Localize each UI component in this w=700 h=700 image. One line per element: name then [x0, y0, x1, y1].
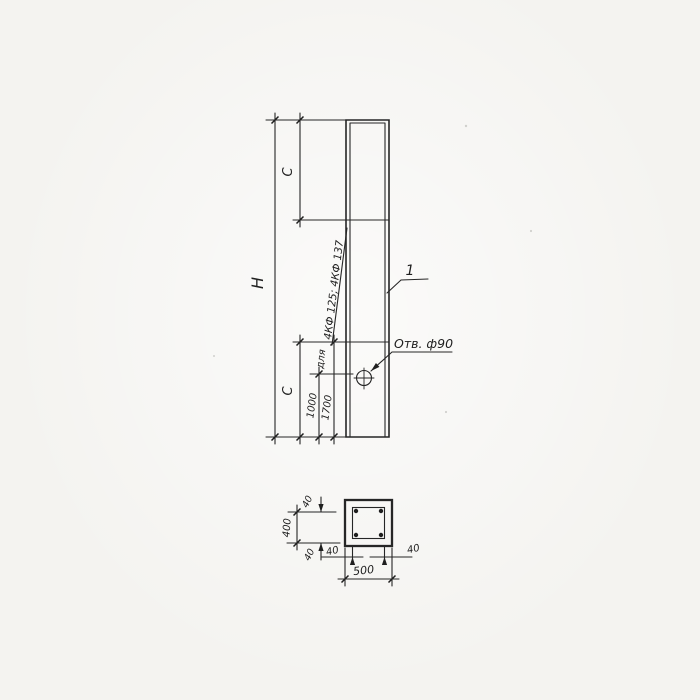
section-cover-left-arrow [350, 557, 355, 565]
elevation-view: H C C 1000 1700 для 4КФ 125; 4КФ 137 Отв… [248, 113, 453, 444]
dim-label-1000: 1000 [305, 392, 319, 419]
section-rebar-dots [354, 509, 383, 537]
part-number-text: 1 [406, 263, 415, 279]
scanned-drawing-page: H C C 1000 1700 для 4КФ 125; 4КФ 137 Отв… [0, 0, 700, 700]
section-cover-bottom-arrow [318, 543, 323, 551]
dim-label-500: 500 [353, 563, 375, 578]
hole-callout-text: Отв. ф90 [394, 336, 453, 351]
part-number-callout: 1 [387, 263, 428, 293]
section-view: 400 40 40 40 40 500 [281, 494, 420, 586]
column-outline [346, 120, 389, 437]
note-prefix-text: для [315, 349, 328, 371]
section-cover-right-arrow [382, 557, 387, 565]
dim-label-cover-bottom: 40 [302, 547, 317, 563]
technical-drawing: H C C 1000 1700 для 4КФ 125; 4КФ 137 Отв… [0, 0, 700, 700]
dim-label-400: 400 [281, 518, 293, 538]
hole-leader-line [371, 352, 452, 371]
part-leader-line [387, 279, 428, 293]
section-cover-top-arrow [318, 504, 323, 512]
dim-label-cover-top: 40 [300, 494, 315, 510]
dim-label-1700: 1700 [320, 394, 334, 421]
dim-label-cover-left: 40 [325, 545, 340, 558]
dim-label-C-top: C [281, 167, 296, 177]
dim-label-cover-right: 40 [406, 543, 421, 556]
dim-label-H: H [248, 277, 267, 289]
column-inner-edge-lines [350, 123, 385, 437]
dim-label-C-bottom: C [281, 386, 296, 396]
